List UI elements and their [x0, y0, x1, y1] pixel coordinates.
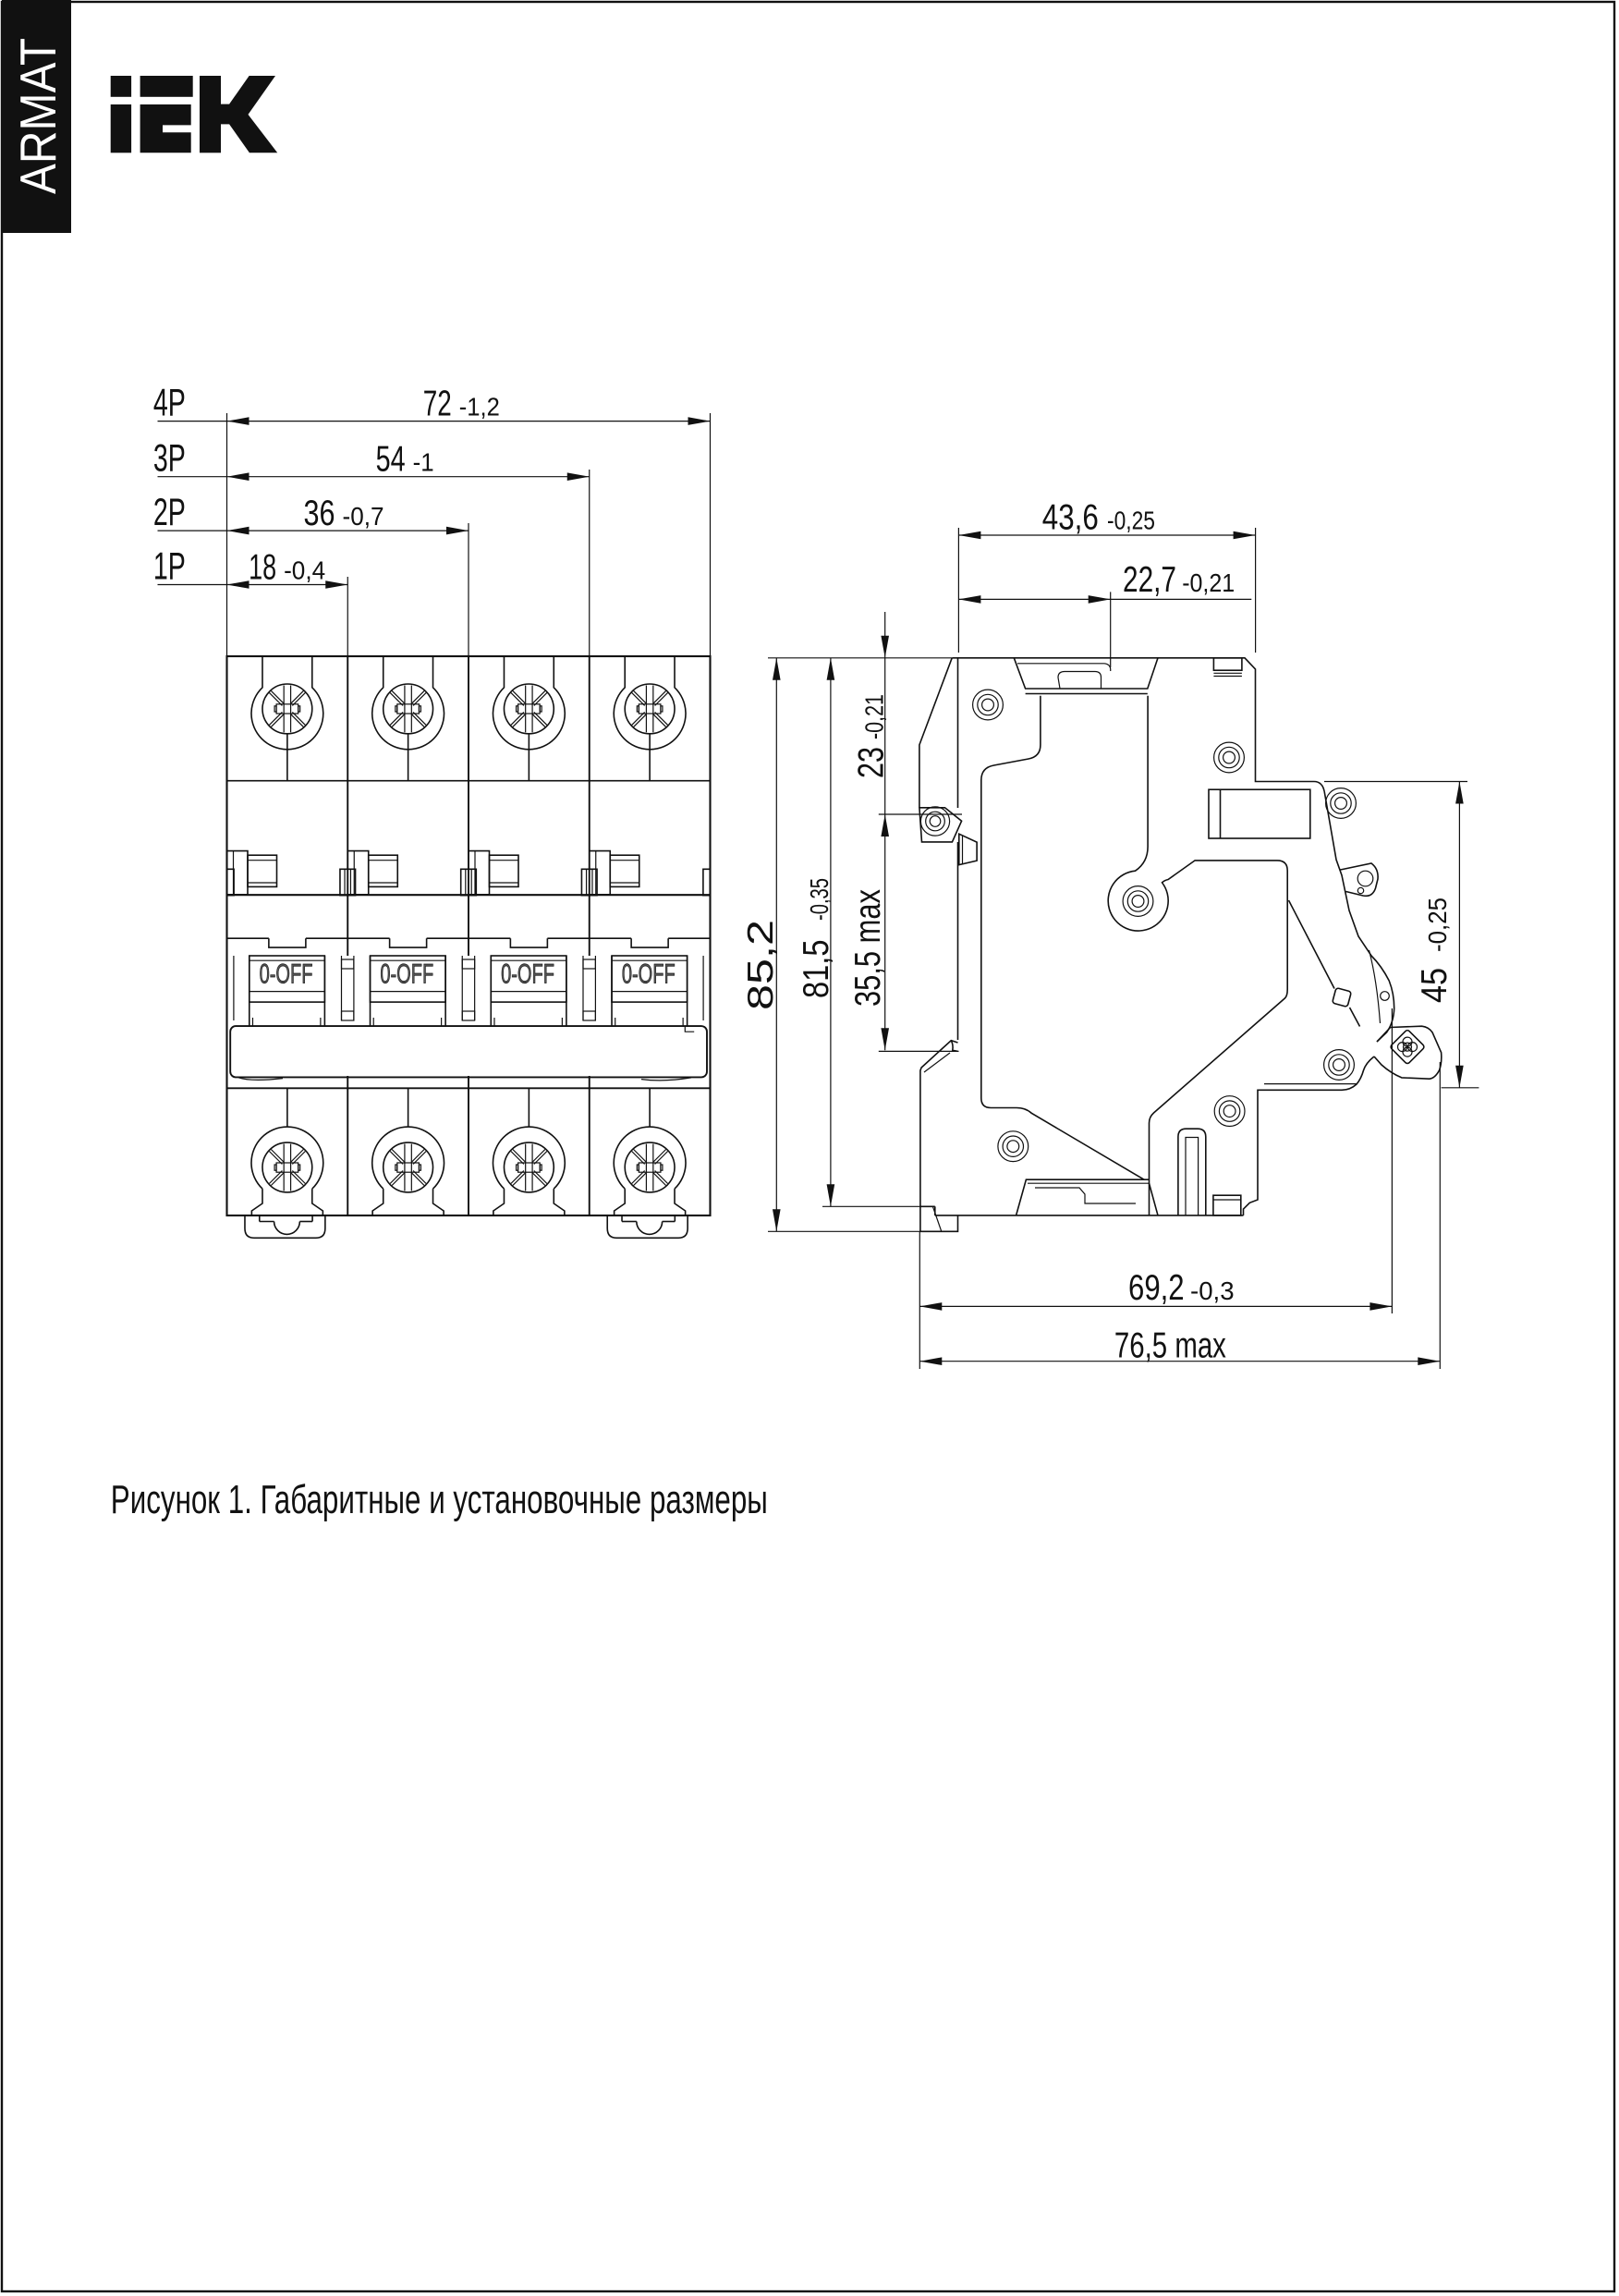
svg-text:81,5: 81,5 [797, 940, 836, 999]
svg-text:0-OFF: 0-OFF [380, 959, 433, 990]
svg-text:-0,21: -0,21 [1182, 568, 1235, 597]
svg-text:36: 36 [304, 494, 335, 533]
svg-text:Рисунок 1. Габаритные и устано: Рисунок 1. Габаритные и установочные раз… [111, 1477, 768, 1522]
svg-text:0-OFF: 0-OFF [260, 959, 313, 990]
svg-text:-0,35: -0,35 [805, 878, 834, 921]
svg-text:22,7: 22,7 [1123, 560, 1176, 600]
svg-text:72: 72 [423, 384, 452, 423]
svg-text:1P: 1P [153, 543, 186, 587]
svg-text:54: 54 [376, 440, 406, 480]
svg-text:23: 23 [852, 747, 892, 778]
svg-text:76,5 max: 76,5 max [1114, 1325, 1226, 1365]
svg-text:-0,4: -0,4 [284, 556, 325, 584]
svg-text:-1,2: -1,2 [459, 392, 500, 421]
svg-text:-0,3: -0,3 [1190, 1276, 1235, 1305]
svg-text:85,2: 85,2 [741, 920, 781, 1010]
svg-text:3P: 3P [153, 436, 186, 480]
svg-text:-1: -1 [413, 448, 434, 477]
svg-text:18: 18 [249, 547, 276, 587]
svg-text:-0,21: -0,21 [860, 694, 889, 739]
svg-text:2P: 2P [153, 490, 186, 533]
svg-text:-0,7: -0,7 [343, 502, 384, 531]
svg-text:0-OFF: 0-OFF [501, 959, 554, 990]
svg-text:-0,25: -0,25 [1107, 507, 1155, 535]
svg-text:0-OFF: 0-OFF [622, 959, 676, 990]
svg-text:4P: 4P [153, 380, 186, 423]
svg-text:-0,25: -0,25 [1423, 898, 1452, 952]
svg-text:69,2: 69,2 [1128, 1268, 1185, 1308]
svg-text:ARMAT: ARMAT [9, 38, 67, 194]
svg-text:35,5 max: 35,5 max [848, 889, 888, 1007]
svg-text:45: 45 [1415, 968, 1455, 1003]
svg-text:43,6: 43,6 [1042, 498, 1099, 538]
